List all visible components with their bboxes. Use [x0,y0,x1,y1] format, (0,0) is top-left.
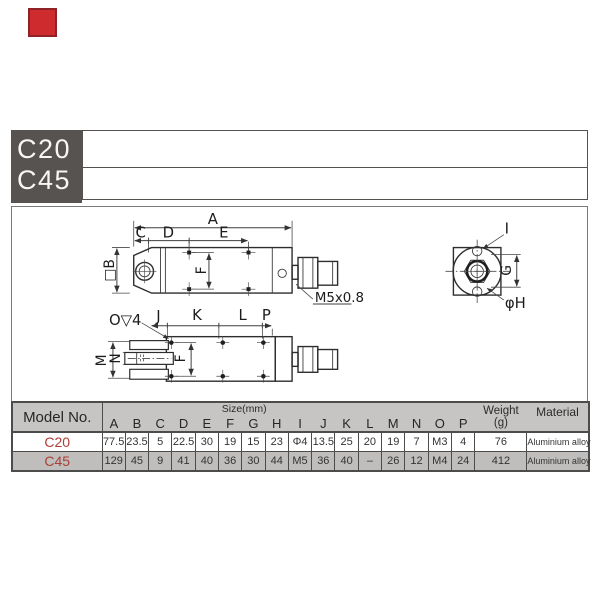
c45-value-a: 129 [102,452,125,472]
dim-label-e: E [219,225,228,242]
dim-label-f-bottom: F [173,354,189,362]
c20-value-i: Φ4 [288,432,311,452]
material-header: Material [527,402,589,432]
top-view-drawing: A C D E □B F M5x0.8 [102,211,364,306]
thread-label-m5: M5x0.8 [315,291,364,306]
col-header-l: L [358,415,381,432]
c45-value-o: M4 [428,452,451,472]
col-header-h: H [265,415,288,432]
col-header-m: M [382,415,405,432]
c45-value-i: M5 [288,452,311,472]
c45-material: Aluminium alloy [527,452,589,472]
c20-value-l: 20 [358,432,381,452]
model-name-c20: C20 [12,432,102,452]
c45-value-g: 30 [242,452,265,472]
c20-value-m: 19 [382,432,405,452]
col-header-c: C [149,415,172,432]
c45-value-f: 36 [218,452,241,472]
dim-label-j: J [155,308,160,325]
dim-label-l: L [238,307,247,324]
c45-value-j: 36 [312,452,335,472]
col-header-n: N [405,415,428,432]
dim-label-i: I [505,221,509,238]
col-header-j: J [312,415,335,432]
c20-value-b: 23.5 [125,432,148,452]
c20-value-e: 30 [195,432,218,452]
c20-weight: 76 [475,432,527,452]
c45-value-h: 44 [265,452,288,472]
weight-label: Weight [483,405,519,417]
push-in-fitting-top [292,257,338,288]
title-row-2 [83,168,587,200]
c20-value-h: 23 [265,432,288,452]
c20-value-n: 7 [405,432,428,452]
col-header-k: K [335,415,358,432]
size-mm-header: Size(mm) [102,402,475,415]
title-row-1 [83,131,587,168]
c20-value-a: 77.5 [102,432,125,452]
dim-label-k: K [192,307,203,324]
dim-label-a: A [208,211,219,228]
spec-row-c20: C20 77.5 23.5 5 22.5 30 19 15 23 Φ4 13.5… [12,432,589,452]
dim-label-f-top: F [194,266,210,274]
dim-label-n: N [108,353,124,363]
engineering-drawing: A C D E □B F M5x0.8 [12,207,587,400]
dim-label-p: P [262,307,271,324]
c20-value-c: 5 [149,432,172,452]
dim-label-square-b: □B [102,259,118,282]
c45-value-k: 40 [335,452,358,472]
weight-unit-label: (g) [494,417,508,429]
c20-value-j: 13.5 [312,432,335,452]
model-name-c45: C45 [12,452,102,472]
model-header-block: C20 C45 [11,130,82,203]
col-header-f: F [218,415,241,432]
model-no-header: Model No. [12,402,102,432]
c20-material: Aluminium alloy [527,432,589,452]
c20-value-o: M3 [428,432,451,452]
c45-value-p: 24 [451,452,474,472]
dim-label-g: G [499,265,515,276]
col-header-o: O [428,415,451,432]
col-header-b: B [125,415,148,432]
c45-value-c: 9 [149,452,172,472]
col-header-a: A [102,415,125,432]
c45-value-e: 40 [195,452,218,472]
spec-row-c45: C45 129 45 9 41 40 36 30 44 M5 36 40 – 2… [12,452,589,472]
red-corner-marker [28,8,57,37]
spec-table: Model No. Size(mm) Weight (g) Material A… [11,401,590,472]
col-header-i: I [288,415,311,432]
counterbore-label: O▽4 [109,312,142,329]
c45-value-d: 41 [172,452,195,472]
end-view-drawing: I G φH [445,221,525,312]
c20-value-p: 4 [451,432,474,452]
dim-label-c: C [135,225,145,242]
c45-value-m: 26 [382,452,405,472]
model-title-c20: C20 [17,134,82,165]
bottom-view-drawing: O▽4 J K L P F M N [94,307,338,383]
c20-value-k: 25 [335,432,358,452]
weight-header: Weight (g) [475,402,527,432]
dim-label-d: D [163,225,174,242]
col-header-e: E [195,415,218,432]
c45-value-b: 45 [125,452,148,472]
title-rows [82,130,588,200]
c45-weight: 412 [475,452,527,472]
catalog-page: C20 C45 [0,0,600,600]
c45-value-l: – [358,452,381,472]
dim-label-phi-h: φH [505,295,526,312]
col-header-d: D [172,415,195,432]
model-title-c45: C45 [17,165,82,196]
c20-value-f: 19 [218,432,241,452]
technical-drawing-area: A C D E □B F M5x0.8 [11,206,588,401]
c20-value-d: 22.5 [172,432,195,452]
push-in-fitting-bottom [292,347,338,373]
col-header-g: G [242,415,265,432]
c45-value-n: 12 [405,452,428,472]
col-header-p: P [451,415,474,432]
c20-value-g: 15 [242,432,265,452]
